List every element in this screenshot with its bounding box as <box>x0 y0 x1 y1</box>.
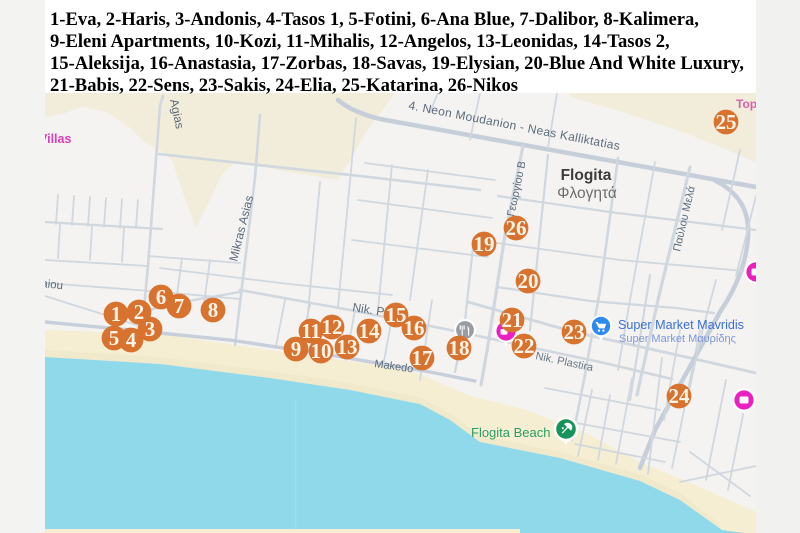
svg-text:Flogita Beach: Flogita Beach <box>471 425 551 440</box>
svg-text:10: 10 <box>311 339 332 363</box>
svg-text:Flogita: Flogita <box>561 167 612 184</box>
svg-text:15-Aleksija, 16-Anastasia, 17-: 15-Aleksija, 16-Anastasia, 17-Zorbas, 18… <box>50 53 744 74</box>
svg-text:24: 24 <box>669 384 691 408</box>
svg-text:Super Market Μαυρίδης: Super Market Μαυρίδης <box>619 333 736 345</box>
svg-text:14: 14 <box>359 319 381 343</box>
svg-text:20: 20 <box>518 269 539 293</box>
svg-text:6: 6 <box>156 285 167 309</box>
svg-text:19: 19 <box>474 232 495 256</box>
svg-text:5: 5 <box>109 326 120 350</box>
svg-text:Super Market Mavridis: Super Market Mavridis <box>618 318 744 332</box>
svg-text:18: 18 <box>449 336 470 360</box>
svg-text:1: 1 <box>111 302 122 326</box>
svg-text:21: 21 <box>502 308 523 332</box>
svg-text:9: 9 <box>291 337 302 361</box>
svg-text:7: 7 <box>174 294 185 318</box>
svg-text:1-Eva, 2-Haris, 3-Andonis, 4-T: 1-Eva, 2-Haris, 3-Andonis, 4-Tasos 1, 5-… <box>50 9 699 30</box>
svg-text:16: 16 <box>404 316 425 340</box>
svg-text:Top: Top <box>736 97 757 111</box>
svg-text:3: 3 <box>145 317 156 341</box>
svg-text:4: 4 <box>126 328 137 352</box>
svg-text:25: 25 <box>716 110 737 134</box>
svg-text:22: 22 <box>514 334 535 358</box>
svg-text:26: 26 <box>506 216 527 240</box>
svg-text:Φλογητά: Φλογητά <box>557 185 617 202</box>
svg-text:8: 8 <box>208 298 219 322</box>
svg-text:17: 17 <box>412 346 433 370</box>
svg-text:21-Babis, 22-Sens, 23-Sakis, 2: 21-Babis, 22-Sens, 23-Sakis, 24-Elia, 25… <box>50 75 518 96</box>
svg-text:23: 23 <box>564 320 585 344</box>
svg-text:13: 13 <box>337 335 358 359</box>
svg-text:9-Eleni Apartments, 10-Kozi, 1: 9-Eleni Apartments, 10-Kozi, 11-Mihalis,… <box>50 31 670 52</box>
